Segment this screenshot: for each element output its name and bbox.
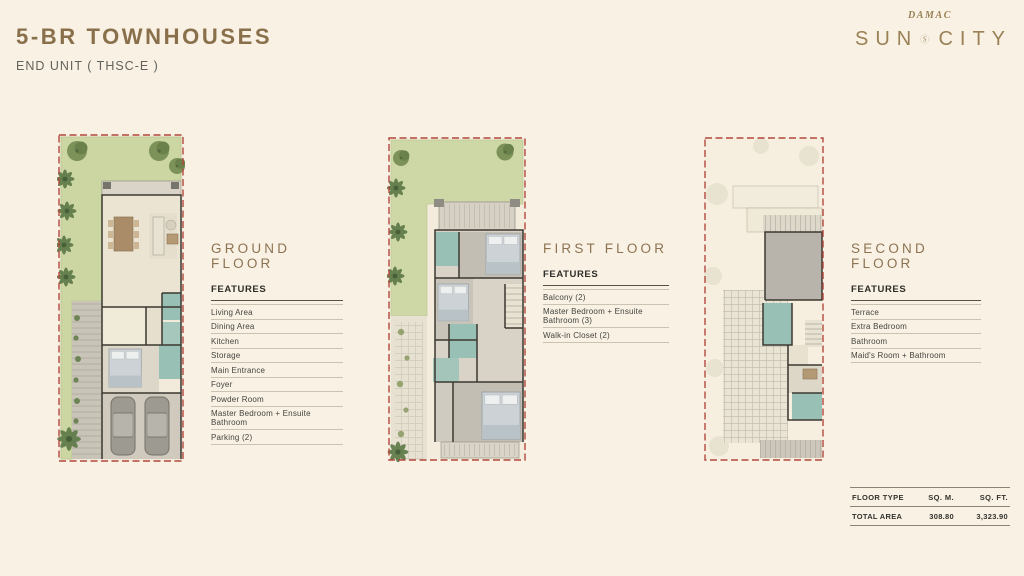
page-subtitle: END UNIT ( THSC-E ) <box>16 59 272 73</box>
col-sqft: SQ. FT. <box>954 493 1008 502</box>
feature-item: Bathroom <box>851 334 981 349</box>
total-area-label: TOTAL AREA <box>852 512 904 521</box>
total-area-sqft: 3,323.90 <box>954 512 1008 521</box>
features-label: FEATURES <box>851 284 981 301</box>
title-block: 5-BR TOWNHOUSES END UNIT ( THSC-E ) <box>16 24 272 73</box>
feature-item: Storage <box>211 349 343 364</box>
logo-word-city: CITY <box>931 28 1012 51</box>
feature-list: Living Area Dining Area Kitchen Storage … <box>211 304 343 445</box>
feature-item: Foyer <box>211 378 343 393</box>
logo-row: SUN S CITY <box>848 23 1012 55</box>
feature-item: Walk-in Closet (2) <box>543 328 669 343</box>
sun-monogram-icon: S <box>919 23 930 55</box>
second-floor-plan <box>703 136 825 462</box>
section-second-floor: SECOND FLOOR FEATURES Terrace Extra Bedr… <box>851 230 981 363</box>
floor-heading: GROUND FLOOR <box>211 241 343 271</box>
feature-item: Master Bedroom + Ensuite Bathroom <box>211 407 343 431</box>
floor-heading: SECOND FLOOR <box>851 241 981 271</box>
features-label: FEATURES <box>211 284 343 301</box>
sun-city-logo: DAMAC SUN S CITY <box>848 10 1012 55</box>
logo-word-sun: SUN <box>848 28 918 51</box>
total-area-sqm: 308.80 <box>904 512 954 521</box>
feature-item: Extra Bedroom <box>851 320 981 335</box>
feature-item: Master Bedroom + Ensuite Bathroom (3) <box>543 305 669 329</box>
area-table: FLOOR TYPE SQ. M. SQ. FT. TOTAL AREA 308… <box>850 487 1010 526</box>
page-title: 5-BR TOWNHOUSES <box>16 24 272 50</box>
feature-item: Dining Area <box>211 320 343 335</box>
feature-item: Balcony (2) <box>543 290 669 305</box>
section-ground-floor: GROUND FLOOR FEATURES Living Area Dining… <box>211 230 343 445</box>
damac-wordmark: DAMAC <box>848 10 1012 21</box>
feature-item: Living Area <box>211 305 343 320</box>
col-floor-type: FLOOR TYPE <box>852 493 904 502</box>
first-floor-plan <box>387 136 527 462</box>
feature-item: Terrace <box>851 305 981 320</box>
feature-item: Maid's Room + Bathroom <box>851 349 981 364</box>
area-table-header: FLOOR TYPE SQ. M. SQ. FT. <box>850 487 1010 507</box>
feature-list: Balcony (2) Master Bedroom + Ensuite Bat… <box>543 289 669 343</box>
feature-list: Terrace Extra Bedroom Bathroom Maid's Ro… <box>851 304 981 363</box>
ground-floor-plan <box>57 133 185 463</box>
area-table-row: TOTAL AREA 308.80 3,323.90 <box>850 507 1010 526</box>
floor-heading: FIRST FLOOR <box>543 241 669 256</box>
col-sqm: SQ. M. <box>904 493 954 502</box>
feature-item: Powder Room <box>211 392 343 407</box>
features-label: FEATURES <box>543 269 669 286</box>
section-first-floor: FIRST FLOOR FEATURES Balcony (2) Master … <box>543 230 669 343</box>
svg-text:S: S <box>923 35 927 44</box>
feature-item: Kitchen <box>211 334 343 349</box>
feature-item: Main Entrance <box>211 363 343 378</box>
feature-item: Parking (2) <box>211 430 343 445</box>
